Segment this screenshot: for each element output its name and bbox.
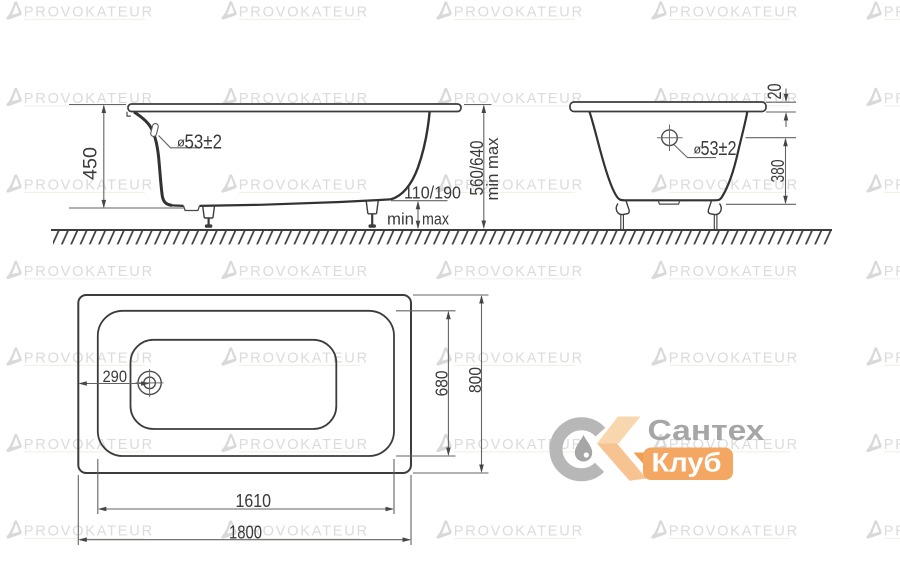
svg-text:min max: min max — [483, 137, 502, 200]
svg-text:1610: 1610 — [236, 491, 272, 511]
svg-text:800: 800 — [465, 367, 485, 393]
svg-text:20: 20 — [765, 84, 786, 100]
svg-text:380: 380 — [768, 160, 788, 183]
svg-text:110/190: 110/190 — [404, 183, 461, 203]
svg-text:Сантех: Сантех — [648, 415, 765, 447]
svg-text:min: min — [387, 210, 414, 229]
svg-text:1800: 1800 — [229, 522, 262, 542]
svg-text:53±2: 53±2 — [185, 130, 223, 153]
svg-text:680: 680 — [431, 370, 451, 396]
svg-text:290: 290 — [103, 368, 128, 386]
svg-text:Клуб: Клуб — [652, 448, 722, 478]
svg-text:max: max — [422, 210, 449, 229]
svg-text:53±2: 53±2 — [701, 138, 737, 160]
svg-text:450: 450 — [80, 147, 102, 180]
